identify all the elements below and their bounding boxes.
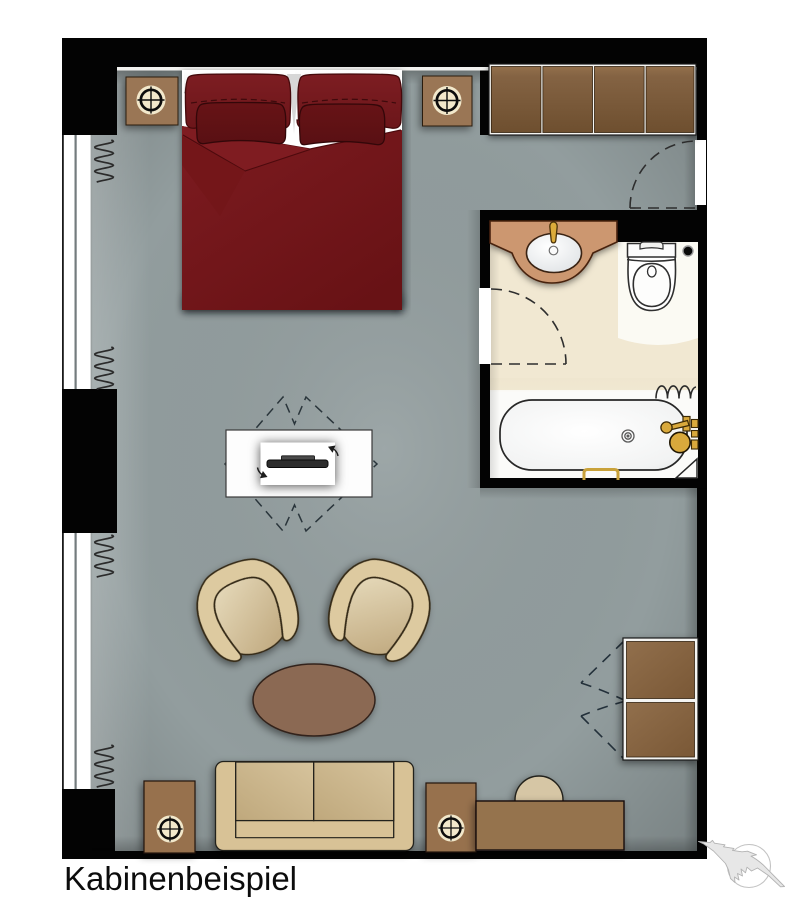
svg-text:Kabinenbeispiel: Kabinenbeispiel [64, 860, 297, 897]
